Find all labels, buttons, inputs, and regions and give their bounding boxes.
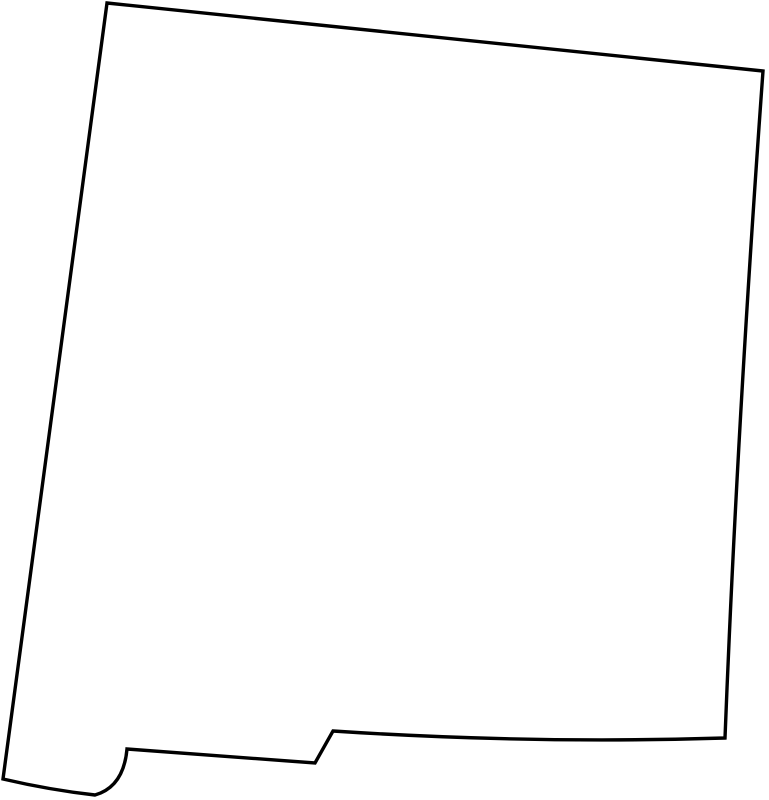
new-mexico-border-path [3, 3, 763, 795]
blank-map-canvas [0, 0, 769, 800]
new-mexico-outline-map [0, 0, 769, 800]
